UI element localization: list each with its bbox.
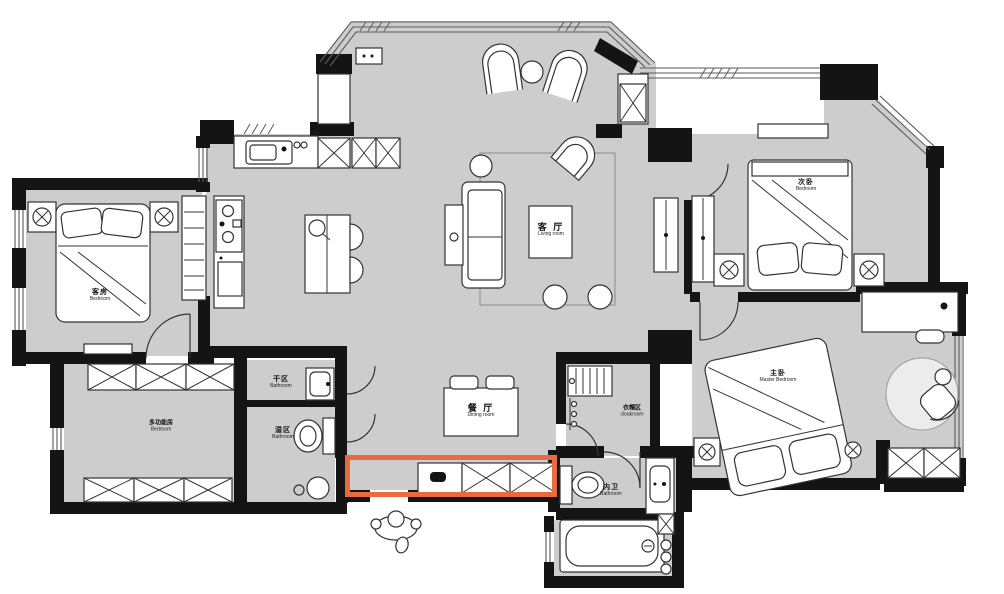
pouf <box>588 285 612 309</box>
bench <box>84 344 132 354</box>
dining-chair <box>486 376 514 389</box>
pillow <box>101 208 144 239</box>
toilet-tank <box>560 466 572 504</box>
dining-chair <box>450 376 478 389</box>
dining-table <box>444 388 518 436</box>
shelf <box>758 124 828 138</box>
faucet-icon <box>662 482 666 486</box>
desk <box>862 292 958 332</box>
pillow <box>60 207 103 238</box>
desk-stool <box>916 330 944 343</box>
round-side-table <box>470 155 492 177</box>
toilet <box>572 472 604 498</box>
toilet-tank <box>323 418 335 454</box>
balcony-side-table <box>521 61 543 83</box>
faucet-icon <box>282 147 287 152</box>
pouf <box>543 285 567 309</box>
faucet-icon <box>326 382 330 386</box>
tub-room <box>560 514 674 574</box>
floor-plan: 客 厅 Living room 餐 厅 Dining room 客房 Bedro… <box>0 0 1004 594</box>
pan-icon <box>309 220 325 236</box>
pillow <box>757 242 800 276</box>
floor-plan-svg <box>0 0 1004 594</box>
toilet <box>294 420 322 452</box>
floor-drain <box>307 477 329 499</box>
wall-fixture <box>356 48 382 64</box>
living-label-box <box>529 206 572 258</box>
person-figure <box>371 511 421 554</box>
pillow <box>801 242 843 275</box>
sofa-side-table <box>445 205 463 265</box>
highlight-region[interactable] <box>345 455 557 497</box>
